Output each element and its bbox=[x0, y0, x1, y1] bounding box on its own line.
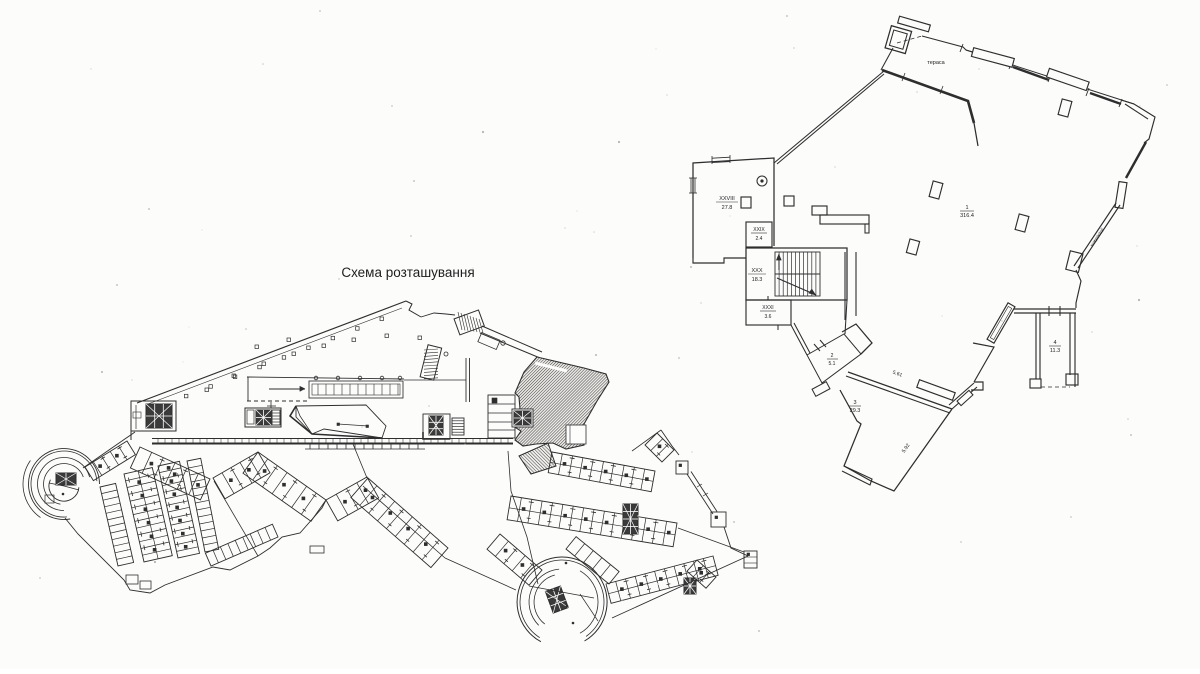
svg-text:27.8: 27.8 bbox=[722, 205, 733, 211]
svg-text:4: 4 bbox=[1053, 340, 1056, 346]
svg-text:2: 2 bbox=[831, 353, 834, 359]
svg-text:XXVIII: XXVIII bbox=[719, 196, 735, 202]
svg-text:316.4: 316.4 bbox=[960, 213, 974, 219]
svg-text:тераса: тераса bbox=[927, 60, 945, 66]
svg-text:2.4: 2.4 bbox=[756, 236, 763, 242]
svg-text:1: 1 bbox=[965, 205, 968, 211]
svg-text:11.3: 11.3 bbox=[1050, 348, 1060, 354]
svg-text:Схема розташування: Схема розташування bbox=[341, 265, 474, 280]
svg-text:XXXI: XXXI bbox=[762, 305, 773, 311]
svg-text:3.6: 3.6 bbox=[765, 314, 772, 320]
svg-text:XXX: XXX bbox=[751, 268, 762, 274]
svg-text:18.3: 18.3 bbox=[752, 277, 763, 283]
svg-text:29.3: 29.3 bbox=[850, 408, 861, 414]
svg-text:XXIX: XXIX bbox=[753, 227, 765, 233]
svg-text:3: 3 bbox=[853, 400, 856, 406]
svg-text:5.1: 5.1 bbox=[829, 361, 836, 367]
